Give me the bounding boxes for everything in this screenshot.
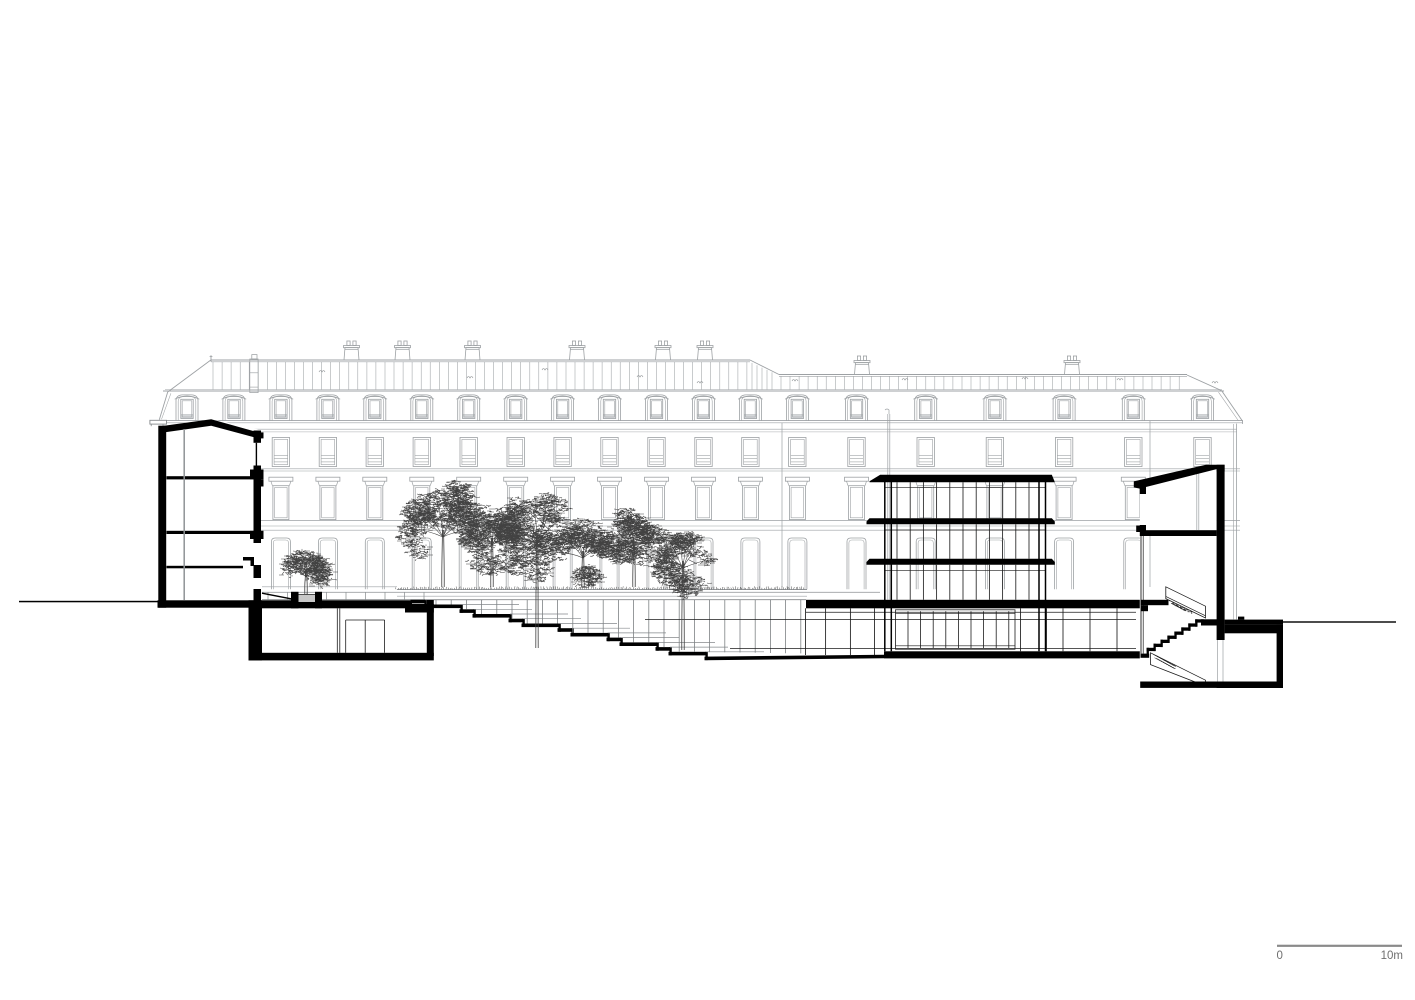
svg-text:10m: 10m: [1381, 950, 1403, 962]
svg-text:0: 0: [1277, 950, 1283, 962]
